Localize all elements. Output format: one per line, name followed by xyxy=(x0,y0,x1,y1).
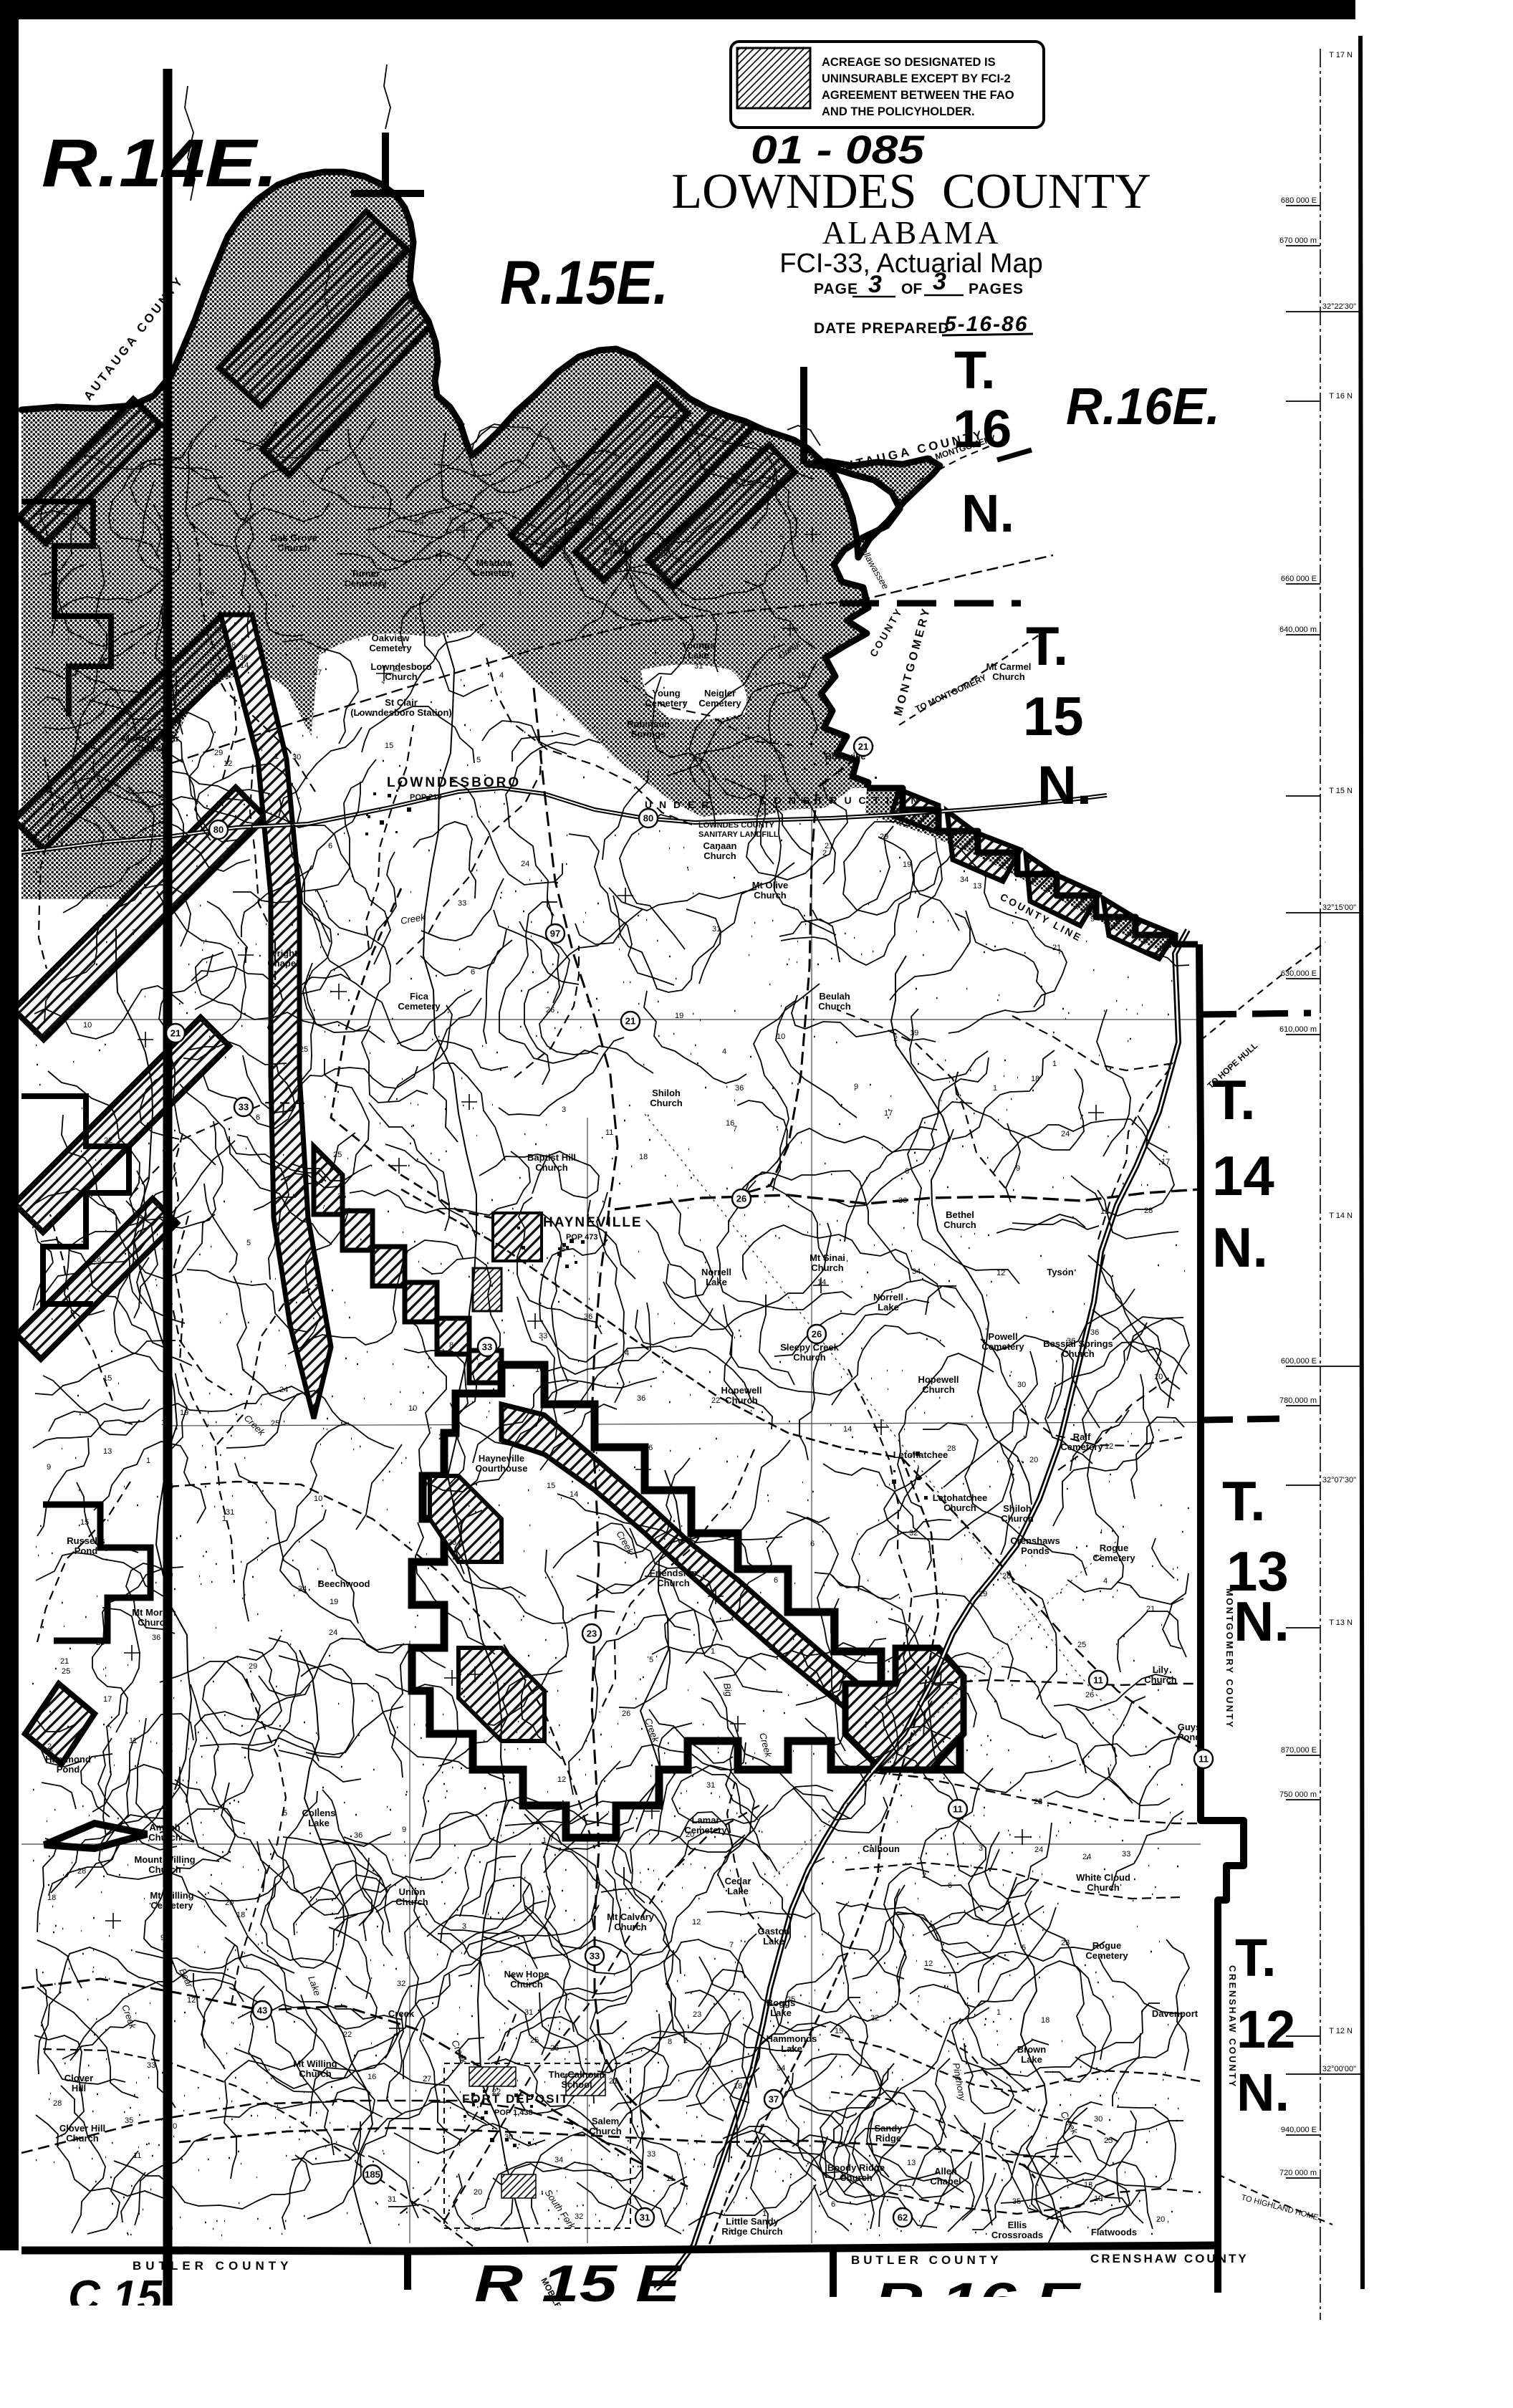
svg-text:32: 32 xyxy=(909,1529,918,1538)
svg-text:660 000 E: 660 000 E xyxy=(1281,575,1317,583)
svg-text:34: 34 xyxy=(49,583,57,592)
svg-text:Wright: Wright xyxy=(269,948,299,959)
svg-text:Rogue: Rogue xyxy=(1100,1543,1128,1553)
svg-text:Cemetery: Cemetery xyxy=(1092,1553,1135,1563)
svg-text:19: 19 xyxy=(910,1029,918,1037)
svg-text:21: 21 xyxy=(1146,1605,1155,1613)
svg-text:2: 2 xyxy=(535,557,539,566)
svg-text:Bessial Springs: Bessial Springs xyxy=(1043,1338,1113,1349)
svg-text:Cemetery: Cemetery xyxy=(684,1825,727,1836)
svg-text:N.: N. xyxy=(1236,2063,1289,2122)
svg-text:33: 33 xyxy=(590,1951,600,1962)
svg-text:T 15 N: T 15 N xyxy=(1329,787,1353,795)
svg-text:Church: Church xyxy=(811,1262,844,1273)
svg-text:18: 18 xyxy=(1041,2016,1050,2025)
svg-text:Ellis: Ellis xyxy=(1008,2220,1027,2230)
svg-text:13: 13 xyxy=(1084,2181,1092,2189)
svg-text:Lowndesboro: Lowndesboro xyxy=(370,661,431,672)
svg-text:12: 12 xyxy=(924,1960,933,1968)
svg-text:POP 219: POP 219 xyxy=(410,793,441,802)
svg-text:Ralf: Ralf xyxy=(1073,1431,1091,1442)
svg-text:21: 21 xyxy=(609,2077,618,2086)
svg-text:Cemetery: Cemetery xyxy=(369,643,412,653)
svg-text:9: 9 xyxy=(1090,915,1095,924)
svg-text:Hammond: Hammond xyxy=(45,1754,91,1765)
svg-text:The Calhoun: The Calhoun xyxy=(549,2069,605,2080)
svg-text:LOWNDES COUNTY: LOWNDES COUNTY xyxy=(698,821,774,830)
svg-text:4: 4 xyxy=(722,1047,726,1056)
svg-text:5: 5 xyxy=(649,1656,653,1664)
svg-text:18: 18 xyxy=(639,1153,648,1161)
svg-text:Chapel: Chapel xyxy=(267,958,298,969)
svg-text:6: 6 xyxy=(831,2200,835,2209)
svg-text:Amach: Amach xyxy=(149,1822,180,1833)
svg-text:Mt Willing: Mt Willing xyxy=(293,2058,337,2069)
svg-text:29: 29 xyxy=(880,833,888,841)
svg-text:Lake: Lake xyxy=(308,1818,330,1828)
svg-text:Hill: Hill xyxy=(72,2083,86,2093)
svg-text:4: 4 xyxy=(1103,1577,1108,1586)
svg-text:Church: Church xyxy=(840,2172,873,2183)
svg-text:Sandy: Sandy xyxy=(874,2123,903,2134)
svg-text:610,000 m: 610,000 m xyxy=(1279,1025,1317,1034)
svg-text:Crossroads: Crossroads xyxy=(991,2230,1043,2240)
svg-text:20: 20 xyxy=(474,2188,482,2197)
svg-text:Hopewell: Hopewell xyxy=(918,1374,959,1385)
svg-text:Beulah: Beulah xyxy=(819,991,850,1002)
svg-text:31: 31 xyxy=(226,1508,234,1517)
svg-text:Shiloh: Shiloh xyxy=(652,1088,681,1098)
svg-text:Robinson: Robinson xyxy=(627,719,670,729)
svg-text:FCI-33, Actuarial Map: FCI-33, Actuarial Map xyxy=(779,249,1042,279)
svg-text:Shiloh: Shiloh xyxy=(1003,1503,1032,1514)
svg-text:12: 12 xyxy=(557,1775,566,1784)
svg-text:T 16 N: T 16 N xyxy=(1329,392,1353,400)
svg-text:19: 19 xyxy=(330,1598,338,1606)
svg-text:14: 14 xyxy=(843,1425,852,1434)
svg-text:33: 33 xyxy=(239,1102,249,1113)
svg-text:Church: Church xyxy=(66,2133,99,2144)
svg-text:Church: Church xyxy=(1001,1513,1034,1524)
svg-text:Young: Young xyxy=(652,688,681,699)
svg-text:21: 21 xyxy=(60,1657,69,1666)
svg-text:34: 34 xyxy=(960,876,969,884)
svg-text:Church: Church xyxy=(992,671,1025,682)
svg-text:Hammonds: Hammonds xyxy=(767,2033,817,2044)
svg-text:185: 185 xyxy=(365,2169,380,2180)
svg-text:9: 9 xyxy=(47,1463,51,1472)
svg-text:Dry: Dry xyxy=(608,536,624,547)
svg-text:T 12 N: T 12 N xyxy=(1329,2027,1353,2035)
svg-text:36: 36 xyxy=(637,1394,645,1403)
svg-text:CRENSHAW COUNTY: CRENSHAW COUNTY xyxy=(1090,2252,1249,2265)
svg-text:Neigler: Neigler xyxy=(704,688,736,699)
svg-text:780,000 m: 780,000 m xyxy=(1279,1396,1317,1405)
svg-text:T.: T. xyxy=(1235,1928,1277,1987)
svg-text:36: 36 xyxy=(152,1634,160,1642)
svg-text:30: 30 xyxy=(1017,1381,1026,1389)
svg-text:Lily: Lily xyxy=(1153,1664,1169,1675)
svg-text:BUTLER COUNTY: BUTLER COUNTY xyxy=(133,2259,292,2273)
svg-text:36: 36 xyxy=(735,1084,744,1093)
svg-text:36: 36 xyxy=(898,1196,907,1205)
svg-text:28: 28 xyxy=(96,1639,105,1647)
svg-text:26: 26 xyxy=(438,1433,447,1442)
svg-text:940,000 E: 940,000 E xyxy=(1281,2126,1317,2134)
svg-text:Guys: Guys xyxy=(1178,1722,1201,1732)
svg-text:28: 28 xyxy=(947,1444,956,1453)
svg-text:870,000 E: 870,000 E xyxy=(1281,1746,1317,1755)
svg-text:18: 18 xyxy=(236,1911,245,1919)
svg-text:630,000 E: 630,000 E xyxy=(1281,969,1317,978)
svg-text:Church: Church xyxy=(650,1098,683,1108)
svg-text:750 000 m: 750 000 m xyxy=(1279,1790,1317,1799)
svg-text:25: 25 xyxy=(299,1045,308,1054)
svg-text:Pond: Pond xyxy=(57,1764,80,1775)
svg-text:ACREAGE SO DESIGNATED IS: ACREAGE SO DESIGNATED IS xyxy=(822,56,996,69)
svg-text:680 000 E: 680 000 E xyxy=(1281,196,1317,205)
svg-text:Lake: Lake xyxy=(763,1936,784,1947)
svg-text:Cemetery: Cemetery xyxy=(645,698,688,709)
svg-text:Lake: Lake xyxy=(727,1886,749,1896)
svg-text:Creek: Creek xyxy=(388,2008,415,2019)
svg-text:34: 34 xyxy=(554,2156,563,2164)
svg-text:13: 13 xyxy=(103,1447,112,1456)
svg-text:35: 35 xyxy=(337,1192,346,1201)
svg-text:Rogue: Rogue xyxy=(1092,1940,1121,1951)
svg-text:N.: N. xyxy=(961,484,1014,543)
svg-text:21: 21 xyxy=(858,742,868,752)
svg-text:31: 31 xyxy=(524,2008,533,2017)
svg-text:School: School xyxy=(561,2079,592,2090)
svg-text:27: 27 xyxy=(423,2075,431,2083)
svg-text:30: 30 xyxy=(292,753,301,762)
svg-text:35: 35 xyxy=(125,2116,133,2125)
svg-text:11: 11 xyxy=(953,1804,963,1815)
svg-text:T 14 N: T 14 N xyxy=(1329,1212,1353,1220)
svg-text:AGREEMENT BETWEEN THE FAO: AGREEMENT BETWEEN THE FAO xyxy=(822,89,1014,102)
svg-text:33: 33 xyxy=(539,1332,547,1340)
svg-text:20: 20 xyxy=(225,1899,234,1907)
svg-text:Cemetery: Cemetery xyxy=(150,1900,193,1911)
svg-text:Church: Church xyxy=(922,1384,955,1395)
svg-text:Creek: Creek xyxy=(603,546,630,557)
svg-text:80: 80 xyxy=(213,825,224,835)
svg-text:Letohatchee: Letohatchee xyxy=(893,1449,948,1460)
svg-text:600,000 E: 600,000 E xyxy=(1281,1357,1317,1366)
svg-text:Lake: Lake xyxy=(781,2043,802,2054)
svg-text:28: 28 xyxy=(77,1867,86,1876)
svg-text:Little Sandy: Little Sandy xyxy=(726,2216,779,2227)
svg-text:24: 24 xyxy=(1061,1130,1070,1138)
svg-text:4: 4 xyxy=(499,671,504,680)
svg-text:Bethel: Bethel xyxy=(946,1209,974,1220)
svg-text:Church: Church xyxy=(1087,1882,1120,1893)
svg-text:2: 2 xyxy=(683,2036,688,2045)
svg-text:26: 26 xyxy=(546,1006,554,1014)
svg-text:BUTLER COUNTY: BUTLER COUNTY xyxy=(851,2253,1002,2267)
svg-text:19: 19 xyxy=(903,860,911,869)
svg-text:19: 19 xyxy=(1094,2194,1103,2203)
svg-text:12: 12 xyxy=(187,1996,196,2005)
svg-text:PAGES: PAGES xyxy=(969,281,1024,297)
svg-text:15: 15 xyxy=(547,1482,555,1490)
svg-text:22: 22 xyxy=(711,1396,720,1405)
svg-text:27: 27 xyxy=(313,668,322,677)
svg-text:14: 14 xyxy=(1212,1144,1274,1207)
svg-text:9: 9 xyxy=(1016,1164,1020,1173)
svg-text:Mt Moriah: Mt Moriah xyxy=(132,1607,176,1618)
svg-text:13: 13 xyxy=(907,2159,916,2167)
svg-text:21: 21 xyxy=(1052,944,1061,952)
svg-text:Morning Star: Morning Star xyxy=(122,733,179,744)
svg-text:Church: Church xyxy=(299,2068,332,2079)
svg-text:Lake: Lake xyxy=(706,1277,727,1287)
svg-text:31: 31 xyxy=(712,925,721,934)
svg-text:4: 4 xyxy=(625,1349,629,1358)
svg-text:34: 34 xyxy=(298,1585,307,1593)
svg-text:23: 23 xyxy=(693,2010,701,2019)
svg-text:Cemetery: Cemetery xyxy=(698,698,741,709)
svg-text:Church: Church xyxy=(754,890,787,901)
svg-text:Lake: Lake xyxy=(688,650,709,661)
svg-text:ALABAMA: ALABAMA xyxy=(822,215,1001,251)
svg-text:Cemetery: Cemetery xyxy=(1085,1950,1128,1961)
svg-text:20: 20 xyxy=(1156,2215,1165,2224)
svg-text:Friendship: Friendship xyxy=(650,1568,698,1578)
svg-text:Church: Church xyxy=(134,743,167,754)
svg-text:6: 6 xyxy=(471,968,475,977)
svg-text:11: 11 xyxy=(1199,1754,1209,1765)
svg-text:17: 17 xyxy=(1161,1158,1170,1166)
svg-text:23: 23 xyxy=(587,1628,597,1639)
svg-text:Church: Church xyxy=(943,1219,976,1230)
svg-text:21: 21 xyxy=(170,1028,181,1039)
svg-text:OF: OF xyxy=(901,281,922,297)
svg-text:6: 6 xyxy=(774,1576,778,1585)
svg-text:LOWNDESBORO: LOWNDESBORO xyxy=(387,775,521,790)
svg-text:Cemetery: Cemetery xyxy=(1060,1442,1103,1452)
svg-text:12: 12 xyxy=(1105,1442,1113,1451)
svg-text:Powell: Powell xyxy=(988,1331,1017,1342)
svg-text:36: 36 xyxy=(593,479,602,487)
svg-text:T 13 N: T 13 N xyxy=(1329,1618,1353,1627)
svg-text:Youngs: Youngs xyxy=(682,640,716,651)
svg-text:7: 7 xyxy=(549,1834,554,1843)
svg-text:Cedar: Cedar xyxy=(725,1876,751,1886)
svg-text:20: 20 xyxy=(764,774,773,782)
svg-text:25: 25 xyxy=(62,1667,70,1676)
svg-text:10: 10 xyxy=(83,1021,92,1030)
svg-text:31: 31 xyxy=(388,2195,396,2204)
svg-text:15: 15 xyxy=(80,1518,89,1527)
svg-text:LOWNDES COUNTY: LOWNDES COUNTY xyxy=(671,164,1151,219)
svg-text:33: 33 xyxy=(482,1342,492,1353)
svg-text:29: 29 xyxy=(214,749,223,757)
svg-text:16: 16 xyxy=(726,1119,734,1128)
svg-text:Mt Willing: Mt Willing xyxy=(150,1890,193,1901)
svg-text:3: 3 xyxy=(562,1105,566,1114)
svg-text:640,000 m: 640,000 m xyxy=(1279,625,1317,634)
svg-text:25: 25 xyxy=(530,2036,539,2045)
svg-text:Church: Church xyxy=(148,1832,181,1843)
svg-text:10: 10 xyxy=(777,1032,785,1041)
svg-text:R.14E.: R.14E. xyxy=(42,125,278,201)
svg-text:29: 29 xyxy=(979,1590,987,1598)
svg-text:12: 12 xyxy=(692,1918,701,1927)
svg-text:Ridge Church: Ridge Church xyxy=(721,2226,782,2237)
svg-text:Church: Church xyxy=(510,1979,543,1990)
svg-text:14: 14 xyxy=(817,1278,826,1287)
svg-text:32°22'30": 32°22'30" xyxy=(1322,302,1356,311)
svg-text:R.16E.: R.16E. xyxy=(1066,378,1220,436)
svg-text:5: 5 xyxy=(476,756,481,764)
svg-text:Canaan: Canaan xyxy=(703,840,737,851)
svg-text:26: 26 xyxy=(644,1444,653,1452)
svg-text:1: 1 xyxy=(59,837,64,845)
svg-text:43: 43 xyxy=(257,2005,267,2016)
svg-text:Beechwood: Beechwood xyxy=(318,1578,370,1589)
svg-text:Collens: Collens xyxy=(302,1808,336,1818)
svg-text:Flatwoods: Flatwoods xyxy=(1091,2227,1137,2237)
svg-text:Oakview: Oakview xyxy=(372,633,410,643)
svg-text:Brown: Brown xyxy=(1017,2044,1047,2055)
svg-text:Hopewell: Hopewell xyxy=(721,1385,762,1396)
svg-text:Lake: Lake xyxy=(770,2008,792,2018)
svg-text:Church: Church xyxy=(277,542,310,553)
svg-text:6: 6 xyxy=(328,842,332,850)
svg-text:24: 24 xyxy=(666,434,674,443)
svg-text:1: 1 xyxy=(146,1457,150,1465)
svg-text:17: 17 xyxy=(100,1843,108,1851)
svg-text:3: 3 xyxy=(933,268,946,295)
svg-text:26: 26 xyxy=(622,1709,630,1718)
svg-text:Church: Church xyxy=(657,1578,690,1588)
svg-text:FORT DEPOSIT: FORT DEPOSIT xyxy=(462,2092,570,2106)
svg-text:5-16-86: 5-16-86 xyxy=(944,312,1028,336)
svg-text:Church: Church xyxy=(793,1352,826,1363)
svg-text:10: 10 xyxy=(168,2122,177,2131)
svg-text:POP 1,438: POP 1,438 xyxy=(494,2109,533,2117)
svg-text:Clover: Clover xyxy=(64,2073,93,2083)
svg-text:23: 23 xyxy=(1034,1798,1042,1806)
svg-text:Baptist Hill: Baptist Hill xyxy=(527,1152,576,1163)
svg-text:Cemetery: Cemetery xyxy=(473,567,516,578)
svg-text:Fica: Fica xyxy=(410,991,429,1002)
svg-text:Lake: Lake xyxy=(878,1302,899,1313)
svg-text:20: 20 xyxy=(1029,1456,1038,1464)
svg-text:9: 9 xyxy=(160,1934,165,1942)
svg-text:670 000 m: 670 000 m xyxy=(1279,236,1317,245)
svg-text:24: 24 xyxy=(279,1386,288,1394)
svg-text:97: 97 xyxy=(550,929,560,939)
svg-text:Mt Calvary: Mt Calvary xyxy=(607,1911,655,1922)
svg-text:Calhoun: Calhoun xyxy=(863,1843,900,1854)
svg-text:29: 29 xyxy=(419,1480,428,1489)
svg-text:29: 29 xyxy=(415,519,423,527)
svg-text:16: 16 xyxy=(535,1366,544,1374)
svg-text:St Clair: St Clair xyxy=(385,697,418,708)
svg-text:21: 21 xyxy=(625,1016,635,1027)
svg-text:12: 12 xyxy=(1236,2000,1295,2059)
svg-text:Cemetery: Cemetery xyxy=(981,1341,1024,1352)
svg-text:HAYNEVILLE: HAYNEVILLE xyxy=(543,1215,643,1230)
svg-text:5: 5 xyxy=(779,533,784,542)
svg-text:29: 29 xyxy=(249,1662,257,1671)
svg-text:36: 36 xyxy=(354,1831,362,1840)
svg-text:23: 23 xyxy=(1061,1939,1070,1947)
svg-text:New Hope: New Hope xyxy=(504,1969,549,1980)
svg-text:17: 17 xyxy=(103,1695,112,1704)
svg-text:26: 26 xyxy=(165,1482,173,1491)
svg-text:25: 25 xyxy=(1077,1641,1086,1649)
svg-text:Church: Church xyxy=(148,1864,181,1875)
svg-text:18: 18 xyxy=(1031,1075,1039,1083)
svg-text:Church: Church xyxy=(818,1001,851,1012)
svg-text:Davenport: Davenport xyxy=(1152,2008,1199,2019)
svg-text:14: 14 xyxy=(240,661,249,670)
svg-text:Turner: Turner xyxy=(351,568,380,579)
svg-text:Church: Church xyxy=(589,2126,622,2136)
svg-text:Courthouse: Courthouse xyxy=(476,1463,528,1474)
svg-text:UNINSURABLE EXCEPT BY FCI-2: UNINSURABLE EXCEPT BY FCI-2 xyxy=(822,72,1011,85)
svg-text:33: 33 xyxy=(147,2061,155,2070)
svg-text:24: 24 xyxy=(1082,1853,1091,1861)
svg-text:32: 32 xyxy=(397,1980,405,1988)
svg-text:DATE PREPARED: DATE PREPARED xyxy=(814,320,950,337)
svg-text:Mt Olive: Mt Olive xyxy=(752,880,789,891)
svg-text:25: 25 xyxy=(271,1419,279,1428)
svg-text:24: 24 xyxy=(329,1628,337,1637)
svg-text:32°07'30": 32°07'30" xyxy=(1322,1476,1356,1484)
svg-text:Church: Church xyxy=(1062,1348,1095,1359)
svg-text:25: 25 xyxy=(333,1151,342,1159)
svg-text:24: 24 xyxy=(521,860,529,868)
svg-text:Springs: Springs xyxy=(631,729,666,739)
svg-text:Mt Sinai: Mt Sinai xyxy=(810,1252,845,1263)
svg-text:7: 7 xyxy=(729,1941,734,1949)
svg-text:1: 1 xyxy=(898,2184,903,2193)
svg-text:Lake: Lake xyxy=(1021,2054,1042,2065)
svg-text:Church: Church xyxy=(943,1502,976,1513)
svg-text:1: 1 xyxy=(518,589,522,598)
svg-text:9: 9 xyxy=(402,1826,406,1834)
svg-text:18: 18 xyxy=(47,1894,56,1902)
svg-text:26: 26 xyxy=(1085,1691,1094,1699)
svg-text:T.: T. xyxy=(1026,616,1068,677)
svg-text:31: 31 xyxy=(706,1781,715,1790)
svg-text:10: 10 xyxy=(408,1404,417,1413)
svg-text:8: 8 xyxy=(231,641,236,650)
svg-text:SANITARY LANDFILL: SANITARY LANDFILL xyxy=(698,830,779,839)
svg-text:Cemetery: Cemetery xyxy=(344,578,387,589)
svg-text:AND THE POLICYHOLDER.: AND THE POLICYHOLDER. xyxy=(822,105,975,118)
svg-text:28: 28 xyxy=(53,2099,62,2108)
svg-text:U N D E R: U N D E R xyxy=(645,799,711,810)
svg-text:6: 6 xyxy=(810,1540,815,1548)
svg-text:Salem: Salem xyxy=(592,2116,619,2126)
svg-text:5: 5 xyxy=(246,1239,251,1247)
svg-text:36: 36 xyxy=(584,1313,592,1321)
svg-text:Tyson: Tyson xyxy=(1047,1267,1073,1277)
svg-text:T.: T. xyxy=(1222,1469,1266,1532)
svg-text:Lamar: Lamar xyxy=(691,1815,719,1826)
svg-text:34: 34 xyxy=(912,1267,921,1276)
svg-text:T 17 N: T 17 N xyxy=(1329,51,1353,59)
svg-text:Hayneville: Hayneville xyxy=(479,1453,524,1464)
svg-text:36: 36 xyxy=(213,626,221,635)
svg-text:19: 19 xyxy=(161,1419,170,1427)
